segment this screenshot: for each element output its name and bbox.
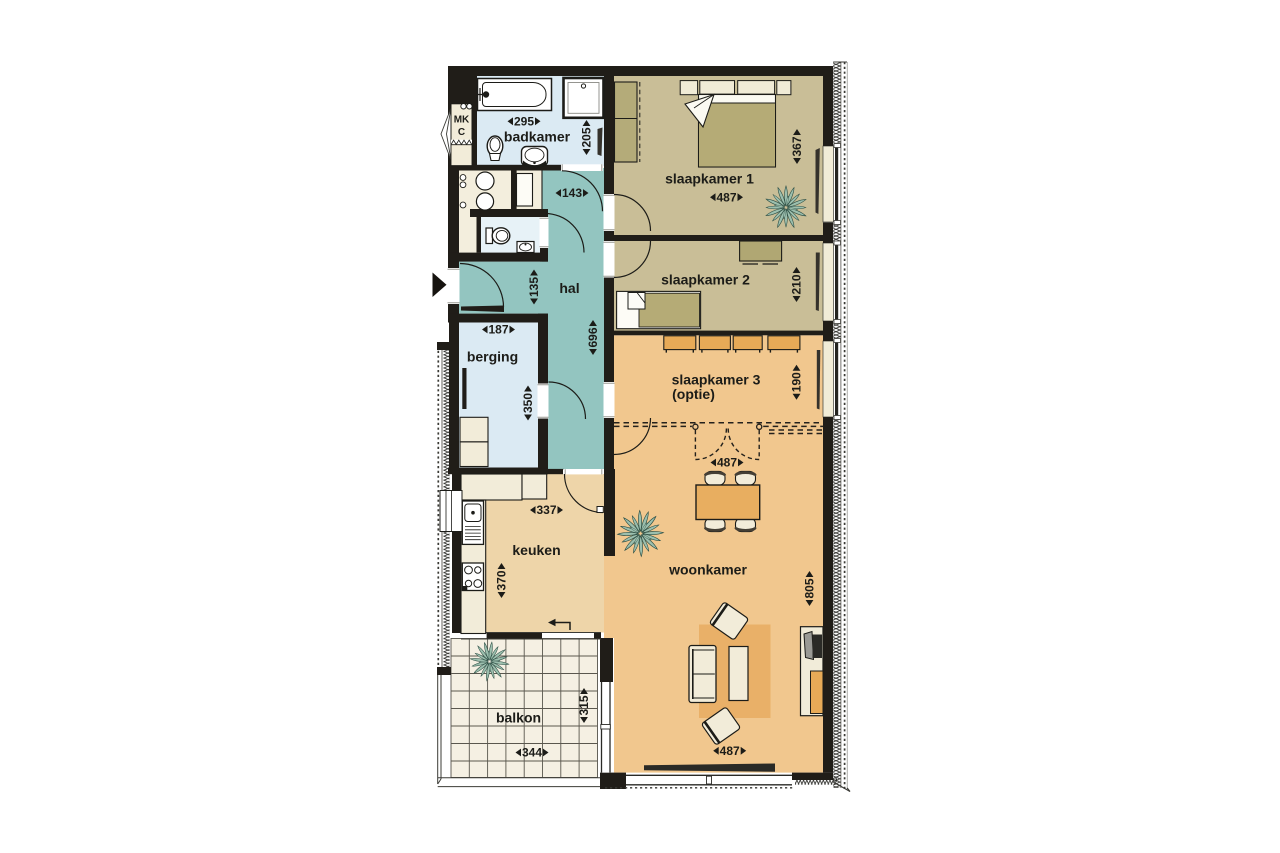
svg-text:berging: berging bbox=[467, 349, 518, 365]
svg-text:367: 367 bbox=[790, 136, 804, 156]
svg-text:205: 205 bbox=[580, 127, 594, 147]
svg-text:slaapkamer 2: slaapkamer 2 bbox=[661, 272, 750, 288]
svg-text:woonkamer: woonkamer bbox=[668, 562, 747, 578]
svg-text:370: 370 bbox=[495, 570, 509, 590]
svg-text:295: 295 bbox=[514, 115, 534, 129]
svg-text:487: 487 bbox=[720, 744, 740, 758]
svg-text:337: 337 bbox=[536, 503, 556, 517]
svg-text:(optie): (optie) bbox=[672, 386, 715, 402]
svg-text:187: 187 bbox=[488, 323, 508, 337]
svg-text:MK: MK bbox=[454, 115, 470, 126]
svg-text:190: 190 bbox=[790, 372, 804, 392]
svg-text:210: 210 bbox=[790, 274, 804, 294]
svg-text:350: 350 bbox=[521, 393, 535, 413]
svg-text:487: 487 bbox=[716, 190, 736, 204]
svg-text:C: C bbox=[458, 127, 465, 138]
svg-text:315: 315 bbox=[577, 695, 591, 715]
svg-text:143: 143 bbox=[562, 186, 582, 200]
svg-text:805: 805 bbox=[803, 578, 817, 598]
svg-text:balkon: balkon bbox=[496, 710, 541, 726]
svg-text:hal: hal bbox=[559, 280, 579, 296]
svg-text:487: 487 bbox=[717, 456, 737, 470]
svg-text:135: 135 bbox=[527, 277, 541, 297]
svg-text:badkamer: badkamer bbox=[504, 129, 571, 145]
svg-text:344: 344 bbox=[522, 746, 542, 760]
svg-text:slaapkamer 1: slaapkamer 1 bbox=[665, 171, 754, 187]
svg-text:keuken: keuken bbox=[512, 542, 560, 558]
svg-text:696: 696 bbox=[586, 327, 600, 347]
